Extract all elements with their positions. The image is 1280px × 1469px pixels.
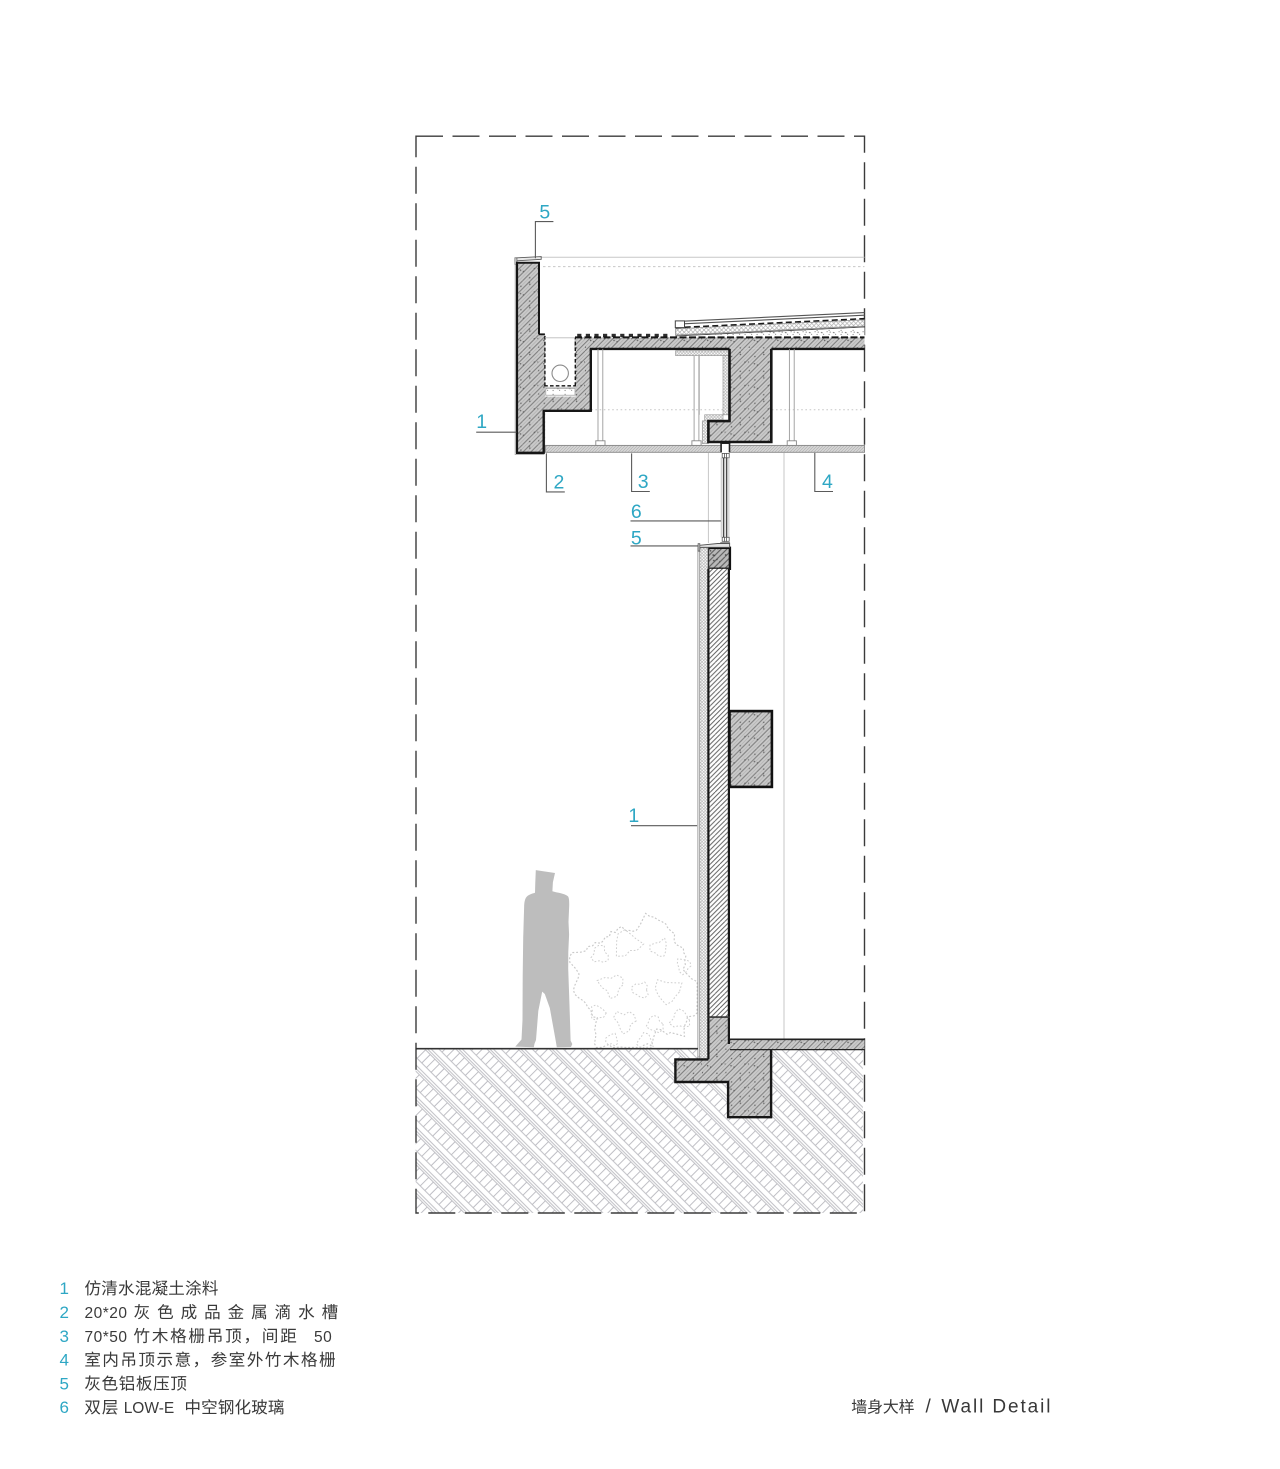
svg-text:6: 6: [59, 1398, 68, 1417]
svg-text:70*50: 70*50: [85, 1329, 128, 1346]
svg-text:3: 3: [638, 471, 649, 493]
svg-text:1: 1: [476, 411, 487, 433]
svg-text:1: 1: [628, 805, 639, 827]
svg-text:5: 5: [59, 1374, 68, 1393]
svg-text:5: 5: [631, 528, 642, 550]
svg-text:4: 4: [822, 471, 833, 493]
svg-text:1: 1: [59, 1279, 68, 1298]
svg-text:50: 50: [314, 1329, 332, 1346]
svg-text:Wall Detail: Wall Detail: [941, 1397, 1052, 1418]
svg-text:20*20: 20*20: [85, 1305, 128, 1322]
svg-text:/: /: [926, 1397, 932, 1418]
svg-text:LOW-E: LOW-E: [124, 1400, 175, 1417]
svg-text:2: 2: [59, 1303, 68, 1322]
svg-text:4: 4: [59, 1351, 68, 1370]
svg-text:3: 3: [59, 1327, 68, 1346]
svg-text:6: 6: [631, 501, 642, 523]
svg-text:5: 5: [539, 201, 550, 223]
svg-text:2: 2: [553, 471, 564, 493]
